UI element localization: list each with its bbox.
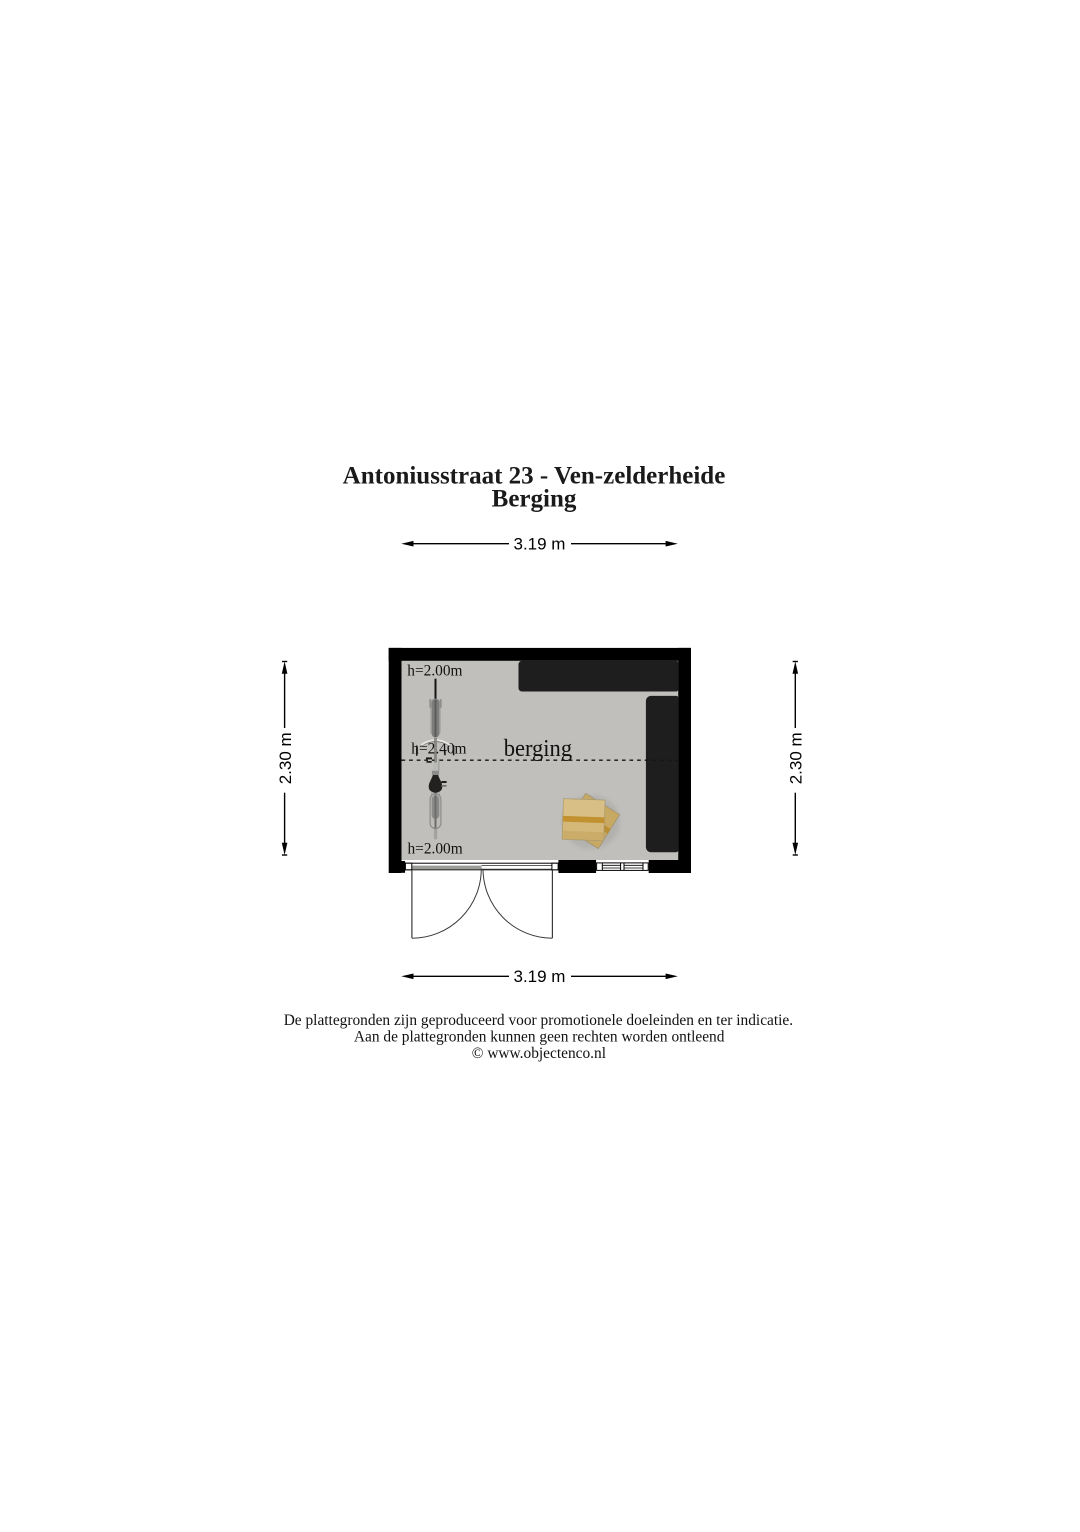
svg-text:berging: berging xyxy=(504,736,572,762)
svg-text:2.30 m: 2.30 m xyxy=(787,732,806,784)
svg-text:De plattegronden zijn geproduc: De plattegronden zijn geproduceerd voor … xyxy=(284,1012,793,1029)
svg-text:3.19 m: 3.19 m xyxy=(514,967,566,986)
svg-text:Aan de plattegronden kunnen ge: Aan de plattegronden kunnen geen rechten… xyxy=(354,1029,725,1046)
svg-text:3.19 m: 3.19 m xyxy=(514,535,566,554)
svg-text:h=2.40m: h=2.40m xyxy=(411,741,467,758)
svg-text:h=2.00m: h=2.00m xyxy=(407,663,463,680)
svg-text:Berging: Berging xyxy=(492,486,577,513)
svg-text:2.30 m: 2.30 m xyxy=(276,732,295,784)
svg-text:h=2.00m: h=2.00m xyxy=(408,841,464,858)
svg-text:© www.objectenco.nl: © www.objectenco.nl xyxy=(472,1045,606,1062)
